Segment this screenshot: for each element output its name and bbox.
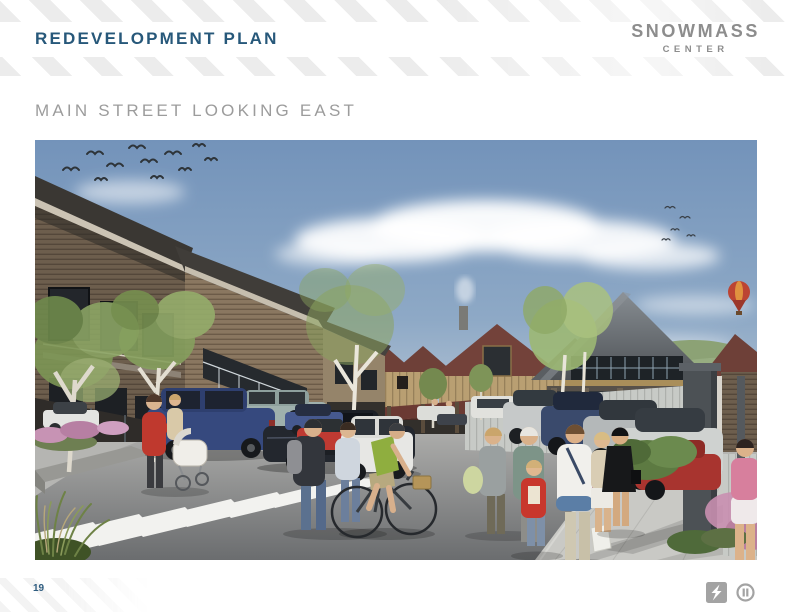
footer-logos bbox=[706, 582, 756, 603]
main-street-rendering-image bbox=[35, 140, 757, 560]
page-number: 19 bbox=[33, 583, 44, 594]
image-caption-title: MAIN STREET LOOKING EAST bbox=[35, 101, 357, 121]
snowmass-s-logo-icon bbox=[706, 582, 727, 603]
partner-circle-logo-icon bbox=[735, 582, 756, 603]
header-stripe-band-bottom bbox=[0, 57, 792, 76]
brand-subname: CENTER bbox=[631, 45, 760, 55]
brand-logo: SNOWMASS CENTER bbox=[631, 22, 760, 55]
footer-stripe-band bbox=[0, 578, 150, 612]
presentation-slide: REDEVELOPMENT PLAN SNOWMASS CENTER MAIN … bbox=[0, 0, 792, 612]
slide-title: REDEVELOPMENT PLAN bbox=[35, 29, 279, 49]
header-stripe-band-top bbox=[0, 0, 792, 22]
brand-name: SNOWMASS bbox=[631, 22, 760, 40]
